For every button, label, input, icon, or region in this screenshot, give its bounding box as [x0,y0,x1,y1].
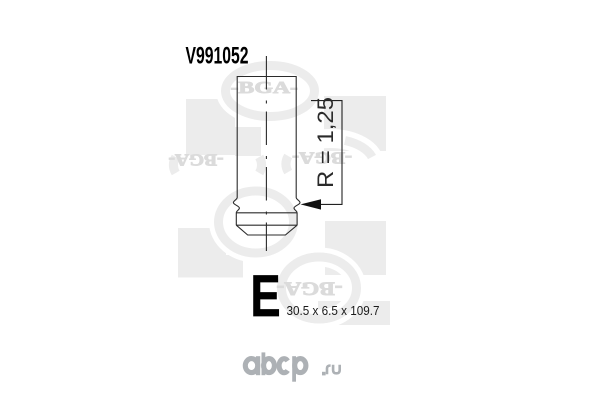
svg-text:-BGA-: -BGA- [168,151,223,170]
svg-text:R = 1,25: R = 1,25 [313,97,338,188]
svg-text:-BGA-: -BGA- [277,278,343,299]
svg-text:-BGA-: -BGA- [231,78,299,97]
svg-text:30.5 x 6.5 x 109.7: 30.5 x 6.5 x 109.7 [287,303,380,318]
svg-text:E: E [251,264,281,329]
svg-text:V991052: V991052 [186,42,249,69]
